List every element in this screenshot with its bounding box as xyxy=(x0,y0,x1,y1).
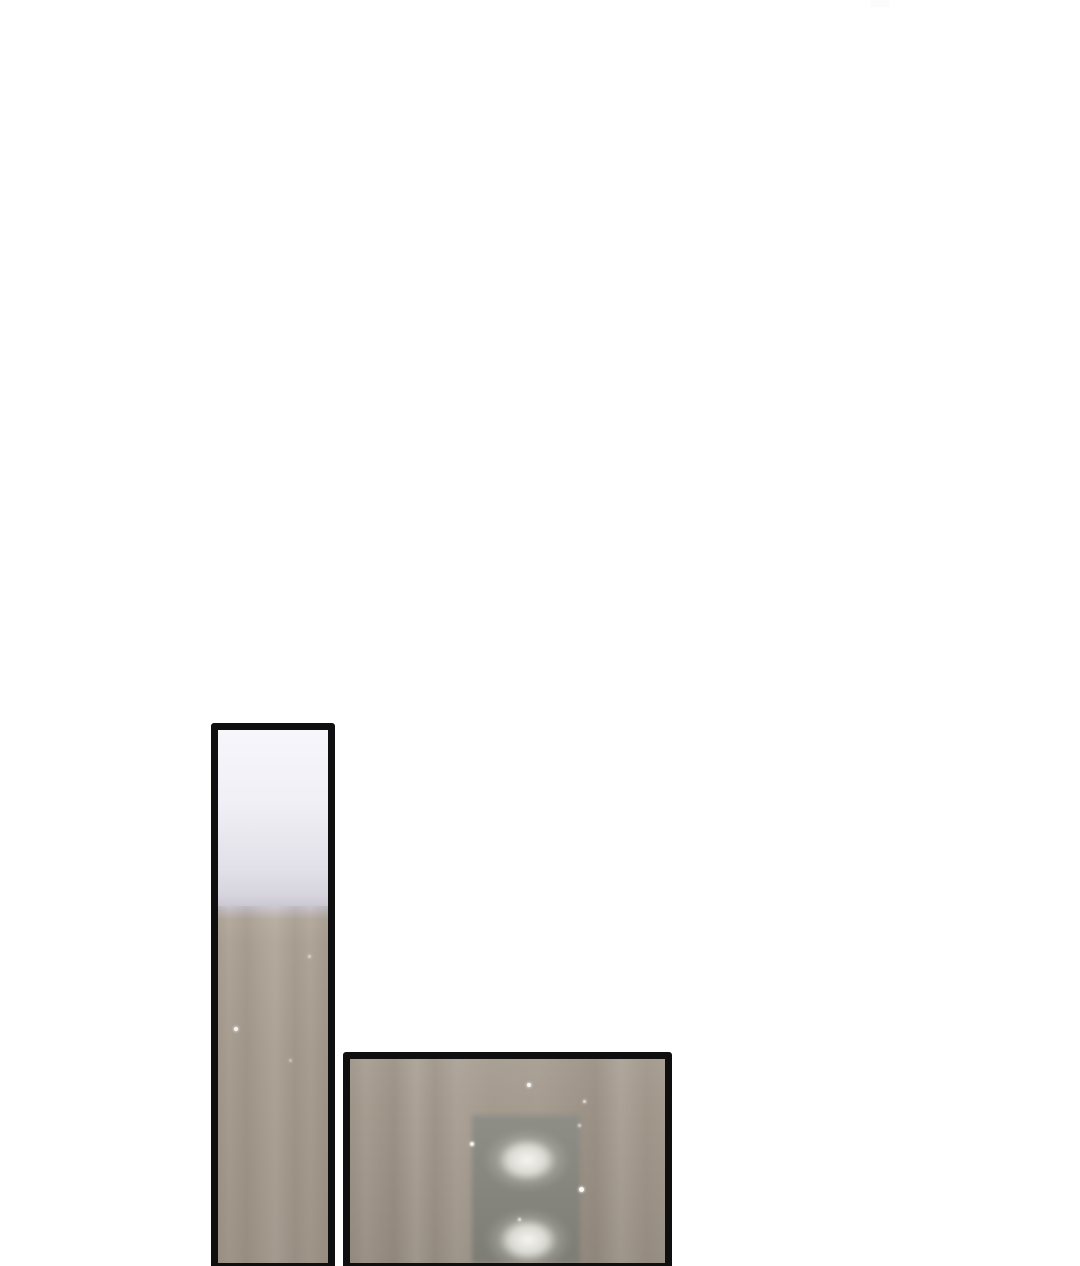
tall-panel-artwork xyxy=(218,730,328,1263)
sparkle-dot xyxy=(583,1100,586,1103)
sparkle-dot xyxy=(527,1083,531,1087)
wall-grain-streaks xyxy=(218,906,328,1263)
sparkle-dot xyxy=(518,1218,521,1221)
button-glow-bottom xyxy=(484,1208,572,1263)
sparkle-dot xyxy=(470,1142,474,1146)
sparkle-dot xyxy=(234,1027,238,1031)
sparkle-dot xyxy=(578,1124,581,1127)
top-edge-artifact xyxy=(871,0,889,7)
comic-panel-tall xyxy=(211,723,335,1266)
elevator-button-plate xyxy=(472,1115,580,1263)
wide-panel-artwork xyxy=(350,1059,665,1263)
sparkle-dot xyxy=(308,955,311,958)
sparkle-dot xyxy=(579,1187,584,1192)
button-glow-top xyxy=(483,1128,571,1192)
sparkle-dot xyxy=(289,1059,292,1062)
comic-panel-wide xyxy=(343,1052,672,1266)
comic-page xyxy=(0,0,1080,1266)
